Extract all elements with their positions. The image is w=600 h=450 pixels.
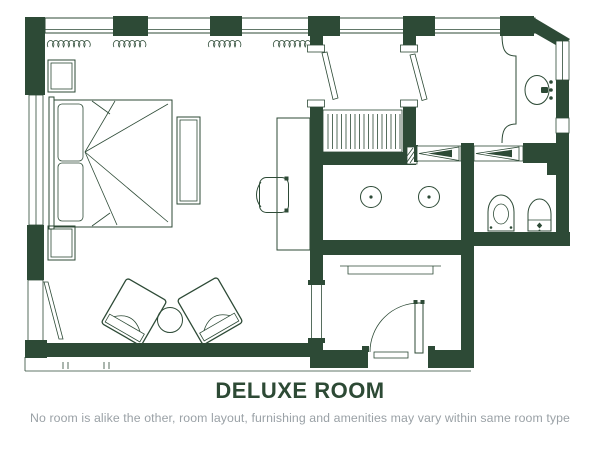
exterior-walls: [25, 16, 570, 371]
vestibule-doors: [308, 45, 428, 107]
room-title: DELUXE ROOM: [0, 378, 600, 404]
armchair-left: [101, 278, 167, 346]
entry-door: [362, 300, 435, 358]
shower-heads: [361, 187, 440, 208]
window-left-lower: [28, 280, 43, 343]
vanity-counter: [502, 34, 516, 143]
curtain-icon: [113, 41, 146, 47]
coffee-table: [158, 308, 183, 333]
door-leaf: [415, 303, 423, 353]
curtain-icon: [273, 41, 311, 47]
wall-niche: [556, 118, 569, 133]
door-swing-arc: [370, 303, 419, 352]
nightstand-bottom: [48, 226, 75, 260]
faucet: [541, 87, 548, 93]
door-jamb: [401, 100, 418, 107]
door-leaf: [322, 52, 338, 100]
wall-pier: [210, 16, 242, 36]
luggage-bench: [177, 117, 200, 204]
bidet: [528, 199, 551, 231]
deluxe-room-page: DELUXE ROOM No room is alike the other, …: [0, 0, 600, 450]
entry-console: [340, 266, 441, 274]
toilet: [488, 195, 514, 231]
door-jamb: [308, 100, 325, 107]
door-jamb: [401, 45, 418, 52]
floor-plan: [0, 0, 600, 378]
open-window-pane: [44, 282, 63, 339]
wall-pier: [500, 16, 534, 36]
door-jamb: [308, 45, 325, 52]
mattress: [54, 100, 172, 227]
interior-walls: [308, 33, 559, 368]
door-leaf: [410, 54, 427, 101]
threshold-ticks: [63, 362, 109, 369]
door-jamb: [362, 346, 369, 352]
wardrobe-rail: [323, 110, 402, 152]
desk-chair: [257, 177, 289, 213]
curtain-icon: [47, 41, 90, 47]
cased-opening: [312, 283, 322, 340]
caption: DELUXE ROOM No room is alike the other, …: [0, 378, 600, 425]
wall-pier: [113, 16, 148, 36]
hanger-lines: [328, 114, 400, 149]
vanity: [502, 34, 553, 143]
pillow: [58, 163, 83, 221]
threshold: [374, 352, 408, 358]
blanket-folds: [85, 101, 168, 226]
nightstand-top: [48, 60, 75, 92]
room-disclaimer: No room is alike the other, room layout,…: [0, 411, 600, 425]
headboard: [49, 97, 54, 229]
bed: [49, 97, 172, 229]
curtains: [47, 41, 311, 47]
bottom-wall: [25, 343, 318, 357]
wall-pillar: [25, 17, 45, 95]
armchair-right: [177, 277, 243, 345]
door-jamb: [428, 346, 435, 352]
desk: [277, 118, 310, 250]
curtain-icon: [208, 41, 241, 47]
pillow: [58, 104, 83, 161]
